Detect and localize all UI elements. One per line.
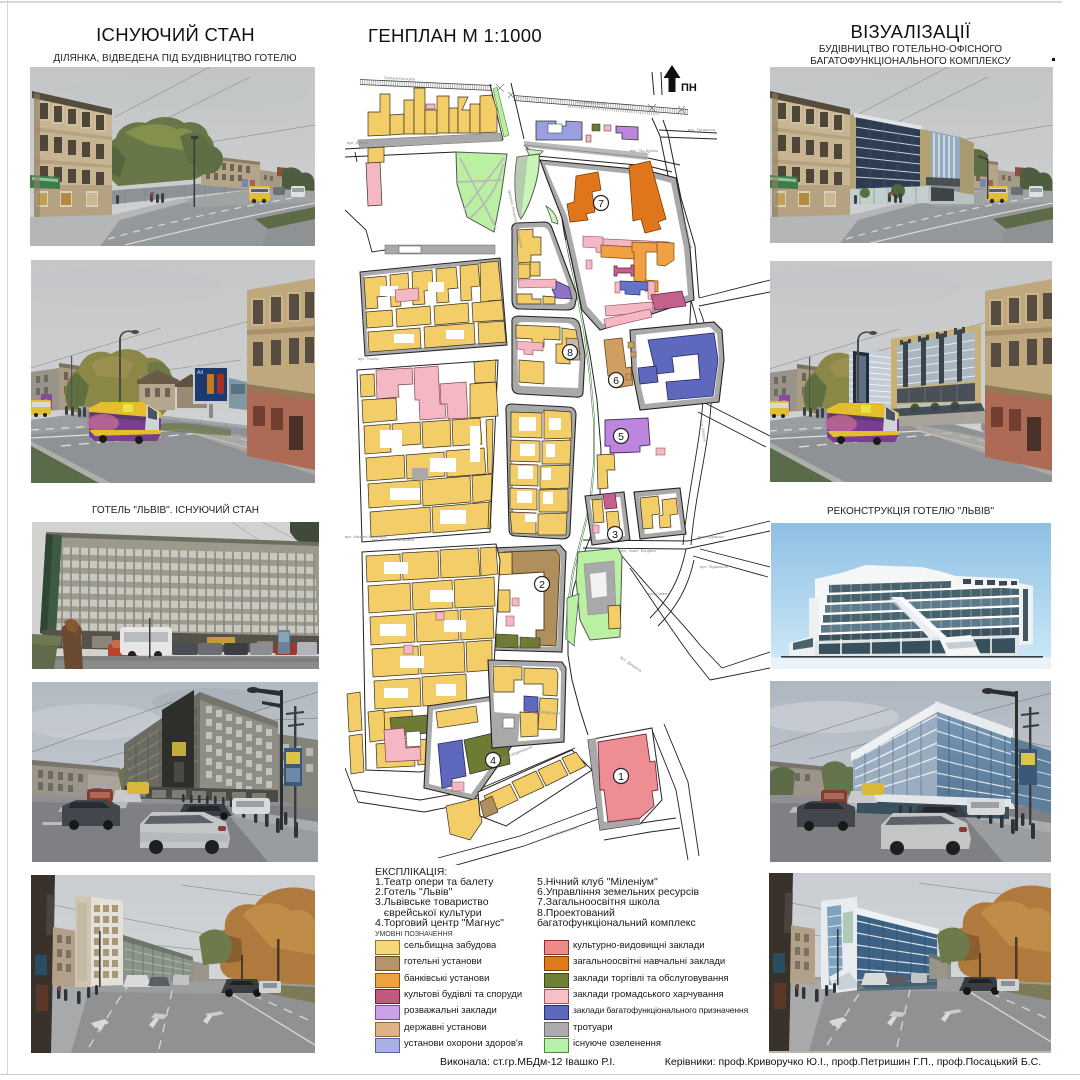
svg-text:вул. Мурашка: вул. Мурашка (698, 534, 724, 539)
svg-text:вул. Татарська: вул. Татарська (688, 127, 716, 132)
svg-text:вул. Мазепи Балабана: вул. Мазепи Балабана (345, 534, 388, 539)
svg-text:7: 7 (598, 198, 604, 210)
svg-text:вул. Під Дубом: вул. Під Дубом (630, 148, 658, 153)
svg-text:ПН: ПН (681, 82, 697, 94)
svg-text:2: 2 (539, 579, 545, 591)
svg-text:5: 5 (618, 431, 624, 443)
svg-text:вул. Гоголя: вул. Гоголя (358, 356, 379, 361)
svg-text:4: 4 (490, 755, 496, 767)
svg-text:3: 3 (612, 529, 618, 541)
svg-text:вул. Підвальна: вул. Підвальна (700, 564, 729, 569)
svg-text:вул. Хмел. Богдана: вул. Хмел. Богдана (620, 548, 656, 553)
svg-text:вул. Гавела: вул. Гавела (648, 591, 670, 596)
svg-text:вул. Дубом: вул. Дубом (347, 140, 368, 145)
svg-text:1: 1 (618, 771, 624, 783)
svg-text:Ad: Ad (197, 370, 203, 376)
svg-text:6: 6 (613, 375, 619, 387)
svg-text:8: 8 (567, 347, 573, 359)
